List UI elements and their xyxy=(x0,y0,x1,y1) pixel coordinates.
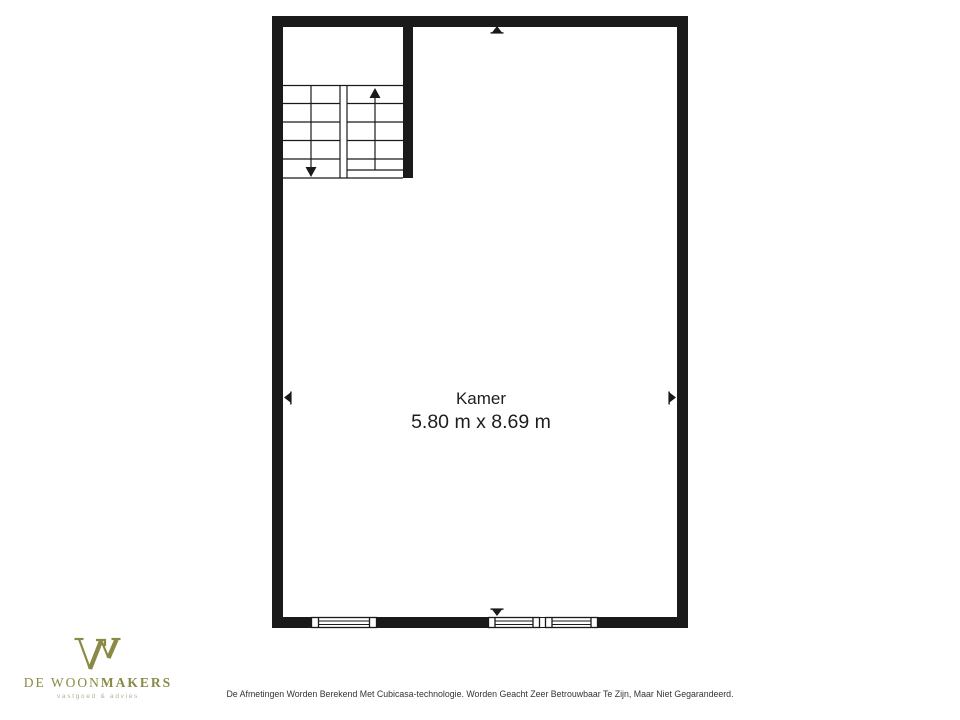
floor-plan xyxy=(0,0,960,720)
wall-marker-top-icon xyxy=(491,26,504,34)
stair-enclosure-wall xyxy=(403,27,413,178)
room-dimensions: 5.80 m x 8.69 m xyxy=(330,410,632,434)
wall-right xyxy=(677,16,688,628)
wall-markers xyxy=(284,26,676,616)
outer-walls xyxy=(272,16,688,628)
stairs-down-arrow xyxy=(306,86,317,178)
wall-marker-right-icon xyxy=(668,392,676,405)
room-name: Kamer xyxy=(330,388,632,409)
staircase xyxy=(283,86,403,179)
window-bottom-right xyxy=(546,618,598,628)
wall-marker-left-icon xyxy=(284,392,292,405)
disclaimer-text: De Afmetingen Worden Berekend Met Cubica… xyxy=(0,689,960,700)
window-bottom-left xyxy=(312,618,377,628)
floorplan-page: Kamer 5.80 m x 8.69 m DE WOONMAKERS vast… xyxy=(0,0,960,720)
wall-top xyxy=(272,16,688,27)
woonmakers-w-monogram-icon xyxy=(72,635,124,673)
wall-marker-bottom-icon xyxy=(491,608,504,616)
brand-name-regular: DE WOON xyxy=(24,675,101,690)
window-bottom-center xyxy=(489,618,540,628)
brand-name-bold: MAKERS xyxy=(101,675,172,690)
wall-left xyxy=(272,16,283,628)
stairs-up-arrow xyxy=(370,88,381,170)
stair-divider xyxy=(340,86,347,179)
room-label: Kamer 5.80 m x 8.69 m xyxy=(330,388,632,434)
